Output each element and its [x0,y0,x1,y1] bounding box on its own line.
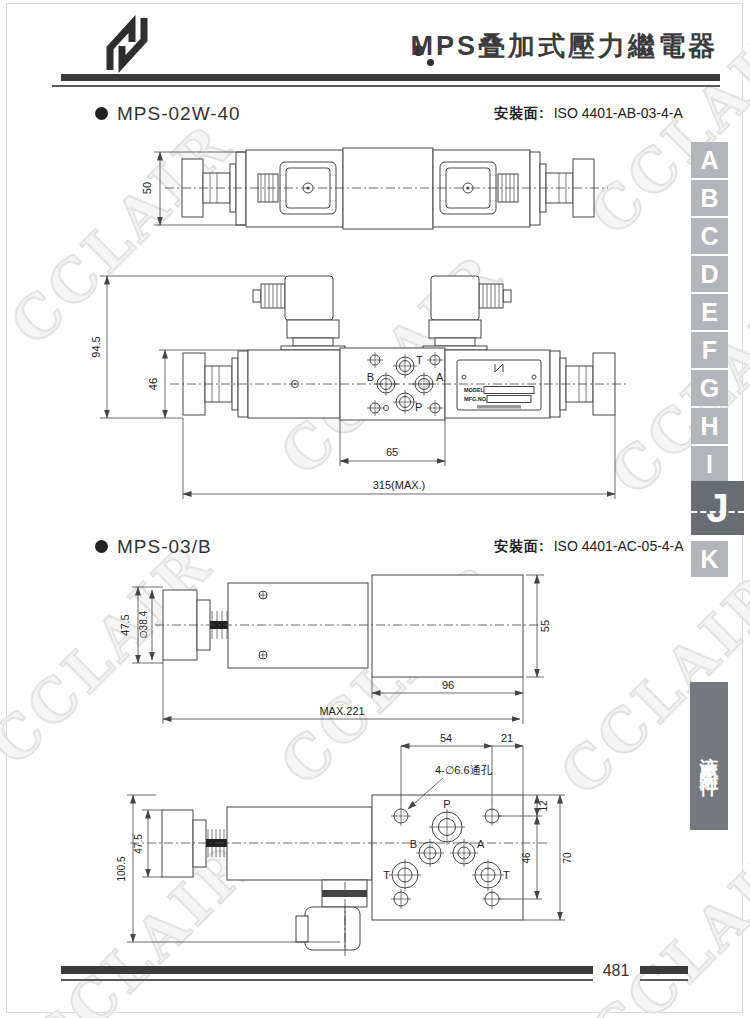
dim-hole-span-y: 46 [521,852,532,864]
hole-note: 4-∅6.6通孔 [435,764,493,776]
page-title: MPS叠加式壓力繼電器 [410,28,718,64]
port-label-t-left: T [383,869,390,881]
drawing-mps03b-bottom-view: P B A T T 54 21 4-∅6.6通孔 12 46 70 100.5 … [100,732,660,960]
dim-height-50: 50 [141,182,153,194]
section1-model-name: MPS-02W-40 [117,103,241,125]
index-tab-i: I [691,446,728,482]
footer-thin-long [61,979,593,981]
tab-dashed-line [691,511,744,513]
port-label-t-right: T [503,869,510,881]
header-rule-thick [61,74,720,81]
index-tab-j-letter: J [706,486,728,531]
dim-plate-height: 70 [562,852,573,864]
dim-total-length: 315(MAX.) [373,479,426,491]
nameplate-company-line [477,405,521,409]
dim-edge-offset: 21 [501,732,513,744]
port-label-p: P [415,401,422,413]
nameplate-mfg-label: MFG.NO. [464,396,488,402]
section1-bullet [95,107,108,120]
index-tab-k: K [691,541,728,577]
port-label-b: B [367,371,374,383]
drawing-mps03b-side-view: 47.5 ∅38.4 55 96 MAX.221 [100,562,645,730]
port-label-t: T [416,354,423,366]
dim-body-height: 46 [147,378,159,390]
category-tab-label: 液壓附件 [696,742,722,770]
mount-label: 安裝面: [494,538,545,556]
header-rule-thin [52,85,720,87]
section2-model-name: MPS-03/B [117,536,212,558]
index-tab-f: F [691,332,728,368]
drawing-mps02w-side-view: T B A P MODEL MFG.NO. 94.5 46 65 315(MAX… [95,268,640,503]
dim-knob-dia: ∅38.4 [138,610,149,639]
port-label-a: A [477,838,485,850]
footer-rule-short [640,966,688,974]
footer-thin-short [640,979,688,981]
index-tab-e: E [691,294,728,330]
dim-knob-height: 47.5 [133,834,144,854]
index-tab-c: C [691,218,728,254]
index-tab-d: D [691,256,728,292]
dim-total-height: 100.5 [116,856,127,881]
mount-value: ISO 4401-AC-05-4-A [554,538,684,554]
catalog-page: { "page": { "title": "MPS叠加式壓力繼電器", "pag… [0,0,750,1018]
mount-value: ISO 4401-AB-03-4-A [554,105,683,121]
mount-label: 安裝面: [494,105,545,123]
index-tab-g: G [691,370,728,406]
index-tab-h: H [691,408,728,444]
category-tab: 液壓附件 [690,682,728,830]
brand-logo [92,12,162,74]
dim-total-height: 94.5 [90,336,102,357]
nameplate-model-label: MODEL [464,387,485,393]
dim-hole-span-x: 54 [440,732,452,744]
page-number: 481 [594,962,638,980]
section2-bullet [95,540,108,553]
footer-rule-long [61,966,593,974]
dim-top-offset: 12 [538,800,549,812]
index-tab-b: B [691,180,728,216]
dim-right-height: 55 [539,620,551,632]
dim-knob-height: 47.5 [119,614,131,635]
section1-mount: 安裝面: ISO 4401-AB-03-4-A [494,105,683,123]
index-tab-a: A [691,142,728,178]
port-label-b: B [410,838,417,850]
port-label-p: P [443,798,450,810]
dim-right-length: 96 [442,679,454,691]
drawing-mps02w-top-view: 50 [130,136,630,242]
dim-total-length: MAX.221 [319,705,364,717]
port-label-a: A [436,371,444,383]
index-tab-j-active: J [691,481,744,535]
dim-port-span: 65 [386,446,398,458]
section2-mount: 安裝面: ISO 4401-AC-05-4-A [494,538,684,556]
